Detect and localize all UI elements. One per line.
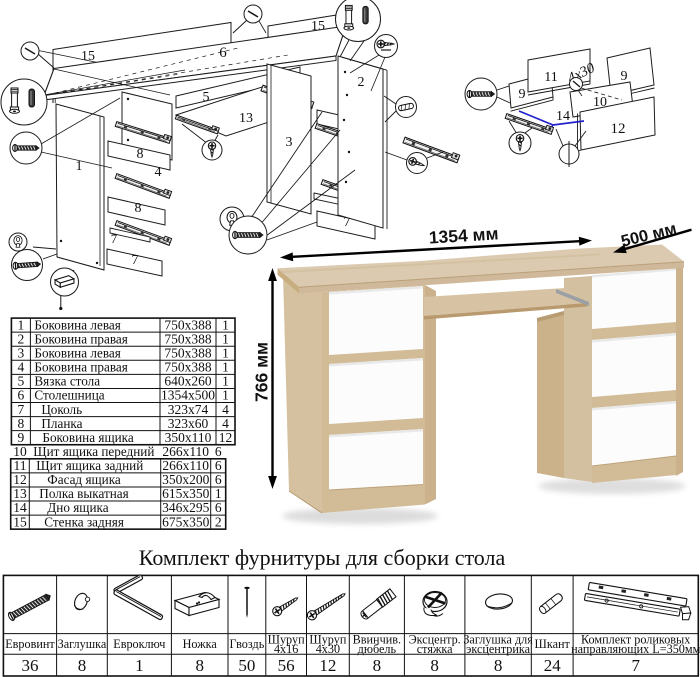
svg-text:Фасад ящика: Фасад ящика bbox=[47, 472, 121, 487]
svg-text:13: 13 bbox=[13, 486, 27, 501]
svg-text:615x350: 615x350 bbox=[162, 486, 210, 501]
svg-text:1354 мм: 1354 мм bbox=[428, 223, 499, 247]
svg-text:6: 6 bbox=[219, 45, 227, 61]
svg-text:4: 4 bbox=[222, 416, 229, 431]
svg-text:7: 7 bbox=[18, 402, 25, 417]
svg-text:1: 1 bbox=[222, 374, 229, 389]
svg-text:750x388: 750x388 bbox=[164, 345, 212, 360]
svg-text:3: 3 bbox=[18, 345, 25, 360]
svg-text:9: 9 bbox=[519, 87, 526, 102]
svg-text:Щит ящика передний: Щит ящика передний bbox=[33, 444, 154, 459]
svg-text:12: 12 bbox=[611, 121, 626, 137]
svg-text:4: 4 bbox=[155, 165, 162, 180]
svg-text:7: 7 bbox=[132, 253, 139, 268]
svg-text:6: 6 bbox=[215, 444, 222, 459]
svg-text:4х30: 4х30 bbox=[316, 642, 340, 656]
svg-text:50: 50 bbox=[238, 656, 255, 675]
svg-text:12: 12 bbox=[319, 656, 336, 675]
svg-text:15: 15 bbox=[13, 514, 27, 529]
svg-text:640x260: 640x260 bbox=[164, 374, 212, 389]
svg-text:350x200: 350x200 bbox=[162, 472, 210, 487]
svg-text:4: 4 bbox=[222, 402, 229, 417]
svg-text:4х16: 4х16 bbox=[274, 642, 298, 656]
svg-text:1: 1 bbox=[215, 486, 222, 501]
svg-text:Столешница: Столешница bbox=[34, 388, 104, 403]
svg-text:8: 8 bbox=[135, 201, 142, 216]
svg-text:8: 8 bbox=[137, 147, 144, 162]
svg-text:11: 11 bbox=[14, 458, 27, 473]
svg-text:8: 8 bbox=[18, 416, 25, 431]
svg-text:14: 14 bbox=[13, 500, 27, 515]
svg-text:7: 7 bbox=[631, 656, 640, 675]
svg-text:1: 1 bbox=[222, 388, 229, 403]
svg-text:8: 8 bbox=[494, 656, 503, 675]
svg-text:Евроключ: Евроключ bbox=[113, 637, 165, 651]
svg-text:Заглушка: Заглушка bbox=[58, 637, 107, 651]
svg-text:56: 56 bbox=[278, 656, 295, 675]
svg-text:6: 6 bbox=[18, 388, 25, 403]
svg-text:2: 2 bbox=[215, 514, 222, 529]
svg-text:Гвоздь: Гвоздь bbox=[230, 637, 265, 651]
svg-text:750x388: 750x388 bbox=[164, 360, 212, 375]
svg-text:Дно ящика: Дно ящика bbox=[47, 500, 108, 515]
svg-text:Полка выкатная: Полка выкатная bbox=[39, 486, 128, 501]
svg-text:266x110: 266x110 bbox=[162, 444, 209, 459]
svg-text:Щит ящика задний: Щит ящика задний bbox=[36, 458, 143, 473]
svg-text:7: 7 bbox=[111, 231, 118, 246]
svg-text:13: 13 bbox=[239, 111, 253, 126]
svg-text:6: 6 bbox=[215, 458, 222, 473]
svg-text:11: 11 bbox=[544, 70, 557, 85]
svg-text:323x74: 323x74 bbox=[168, 402, 209, 417]
svg-text:8: 8 bbox=[373, 656, 382, 675]
svg-text:Шкант: Шкант bbox=[535, 637, 571, 651]
svg-text:стяжка: стяжка bbox=[417, 642, 453, 656]
svg-text:8: 8 bbox=[195, 656, 204, 675]
svg-text:675x350: 675x350 bbox=[162, 514, 210, 529]
svg-text:266x110: 266x110 bbox=[162, 458, 209, 473]
svg-text:1: 1 bbox=[135, 656, 144, 675]
svg-text:12: 12 bbox=[13, 472, 27, 487]
svg-text:1: 1 bbox=[222, 360, 229, 375]
svg-text:766 мм: 766 мм bbox=[252, 342, 272, 402]
svg-text:8: 8 bbox=[430, 656, 439, 675]
svg-text:Боковина левая: Боковина левая bbox=[34, 317, 120, 332]
svg-text:Боковина правая: Боковина правая bbox=[34, 331, 127, 346]
svg-text:Планка: Планка bbox=[41, 416, 82, 431]
svg-text:9: 9 bbox=[621, 69, 628, 84]
svg-text:6: 6 bbox=[215, 500, 222, 515]
svg-text:1: 1 bbox=[222, 345, 229, 360]
svg-text:1: 1 bbox=[222, 317, 229, 332]
svg-text:9: 9 bbox=[18, 430, 25, 445]
svg-text:3: 3 bbox=[286, 135, 293, 150]
svg-text:Стенка задняя: Стенка задняя bbox=[44, 514, 124, 529]
svg-text:дюбель: дюбель bbox=[358, 642, 397, 656]
svg-text:14: 14 bbox=[556, 109, 570, 124]
svg-text:1354x500: 1354x500 bbox=[161, 388, 215, 403]
svg-text:2: 2 bbox=[18, 331, 25, 346]
svg-text:36: 36 bbox=[22, 656, 39, 675]
svg-text:2: 2 bbox=[358, 75, 365, 90]
svg-text:750x388: 750x388 bbox=[164, 317, 212, 332]
svg-text:Вязка стола: Вязка стола bbox=[34, 374, 100, 389]
svg-text:эксцентрика: эксцентрика bbox=[466, 642, 531, 656]
svg-text:Цоколь: Цоколь bbox=[41, 402, 82, 417]
svg-text:346x295: 346x295 bbox=[162, 500, 210, 515]
svg-text:направляющих L=350мм: направляющих L=350мм bbox=[571, 642, 700, 656]
svg-text:350x110: 350x110 bbox=[165, 430, 212, 445]
svg-text:Боковина правая: Боковина правая bbox=[34, 360, 127, 375]
svg-text:4: 4 bbox=[18, 360, 25, 375]
svg-text:750x388: 750x388 bbox=[164, 331, 212, 346]
svg-text:Евровинт: Евровинт bbox=[5, 637, 55, 651]
svg-text:1: 1 bbox=[222, 331, 229, 346]
svg-text:323x60: 323x60 bbox=[168, 416, 209, 431]
svg-text:24: 24 bbox=[544, 656, 562, 675]
svg-text:5: 5 bbox=[203, 90, 210, 105]
svg-text:Боковина ящика: Боковина ящика bbox=[42, 430, 133, 445]
svg-text:Ножка: Ножка bbox=[183, 637, 218, 651]
svg-text:1: 1 bbox=[18, 317, 25, 332]
svg-text:8: 8 bbox=[78, 656, 87, 675]
svg-text:12: 12 bbox=[219, 430, 233, 445]
svg-text:5: 5 bbox=[18, 374, 25, 389]
svg-text:Комплект фурнитуры для сборки: Комплект фурнитуры для сборки стола bbox=[139, 545, 506, 570]
svg-text:10: 10 bbox=[13, 444, 27, 459]
svg-text:6: 6 bbox=[215, 472, 222, 487]
svg-text:Боковина левая: Боковина левая bbox=[34, 345, 120, 360]
